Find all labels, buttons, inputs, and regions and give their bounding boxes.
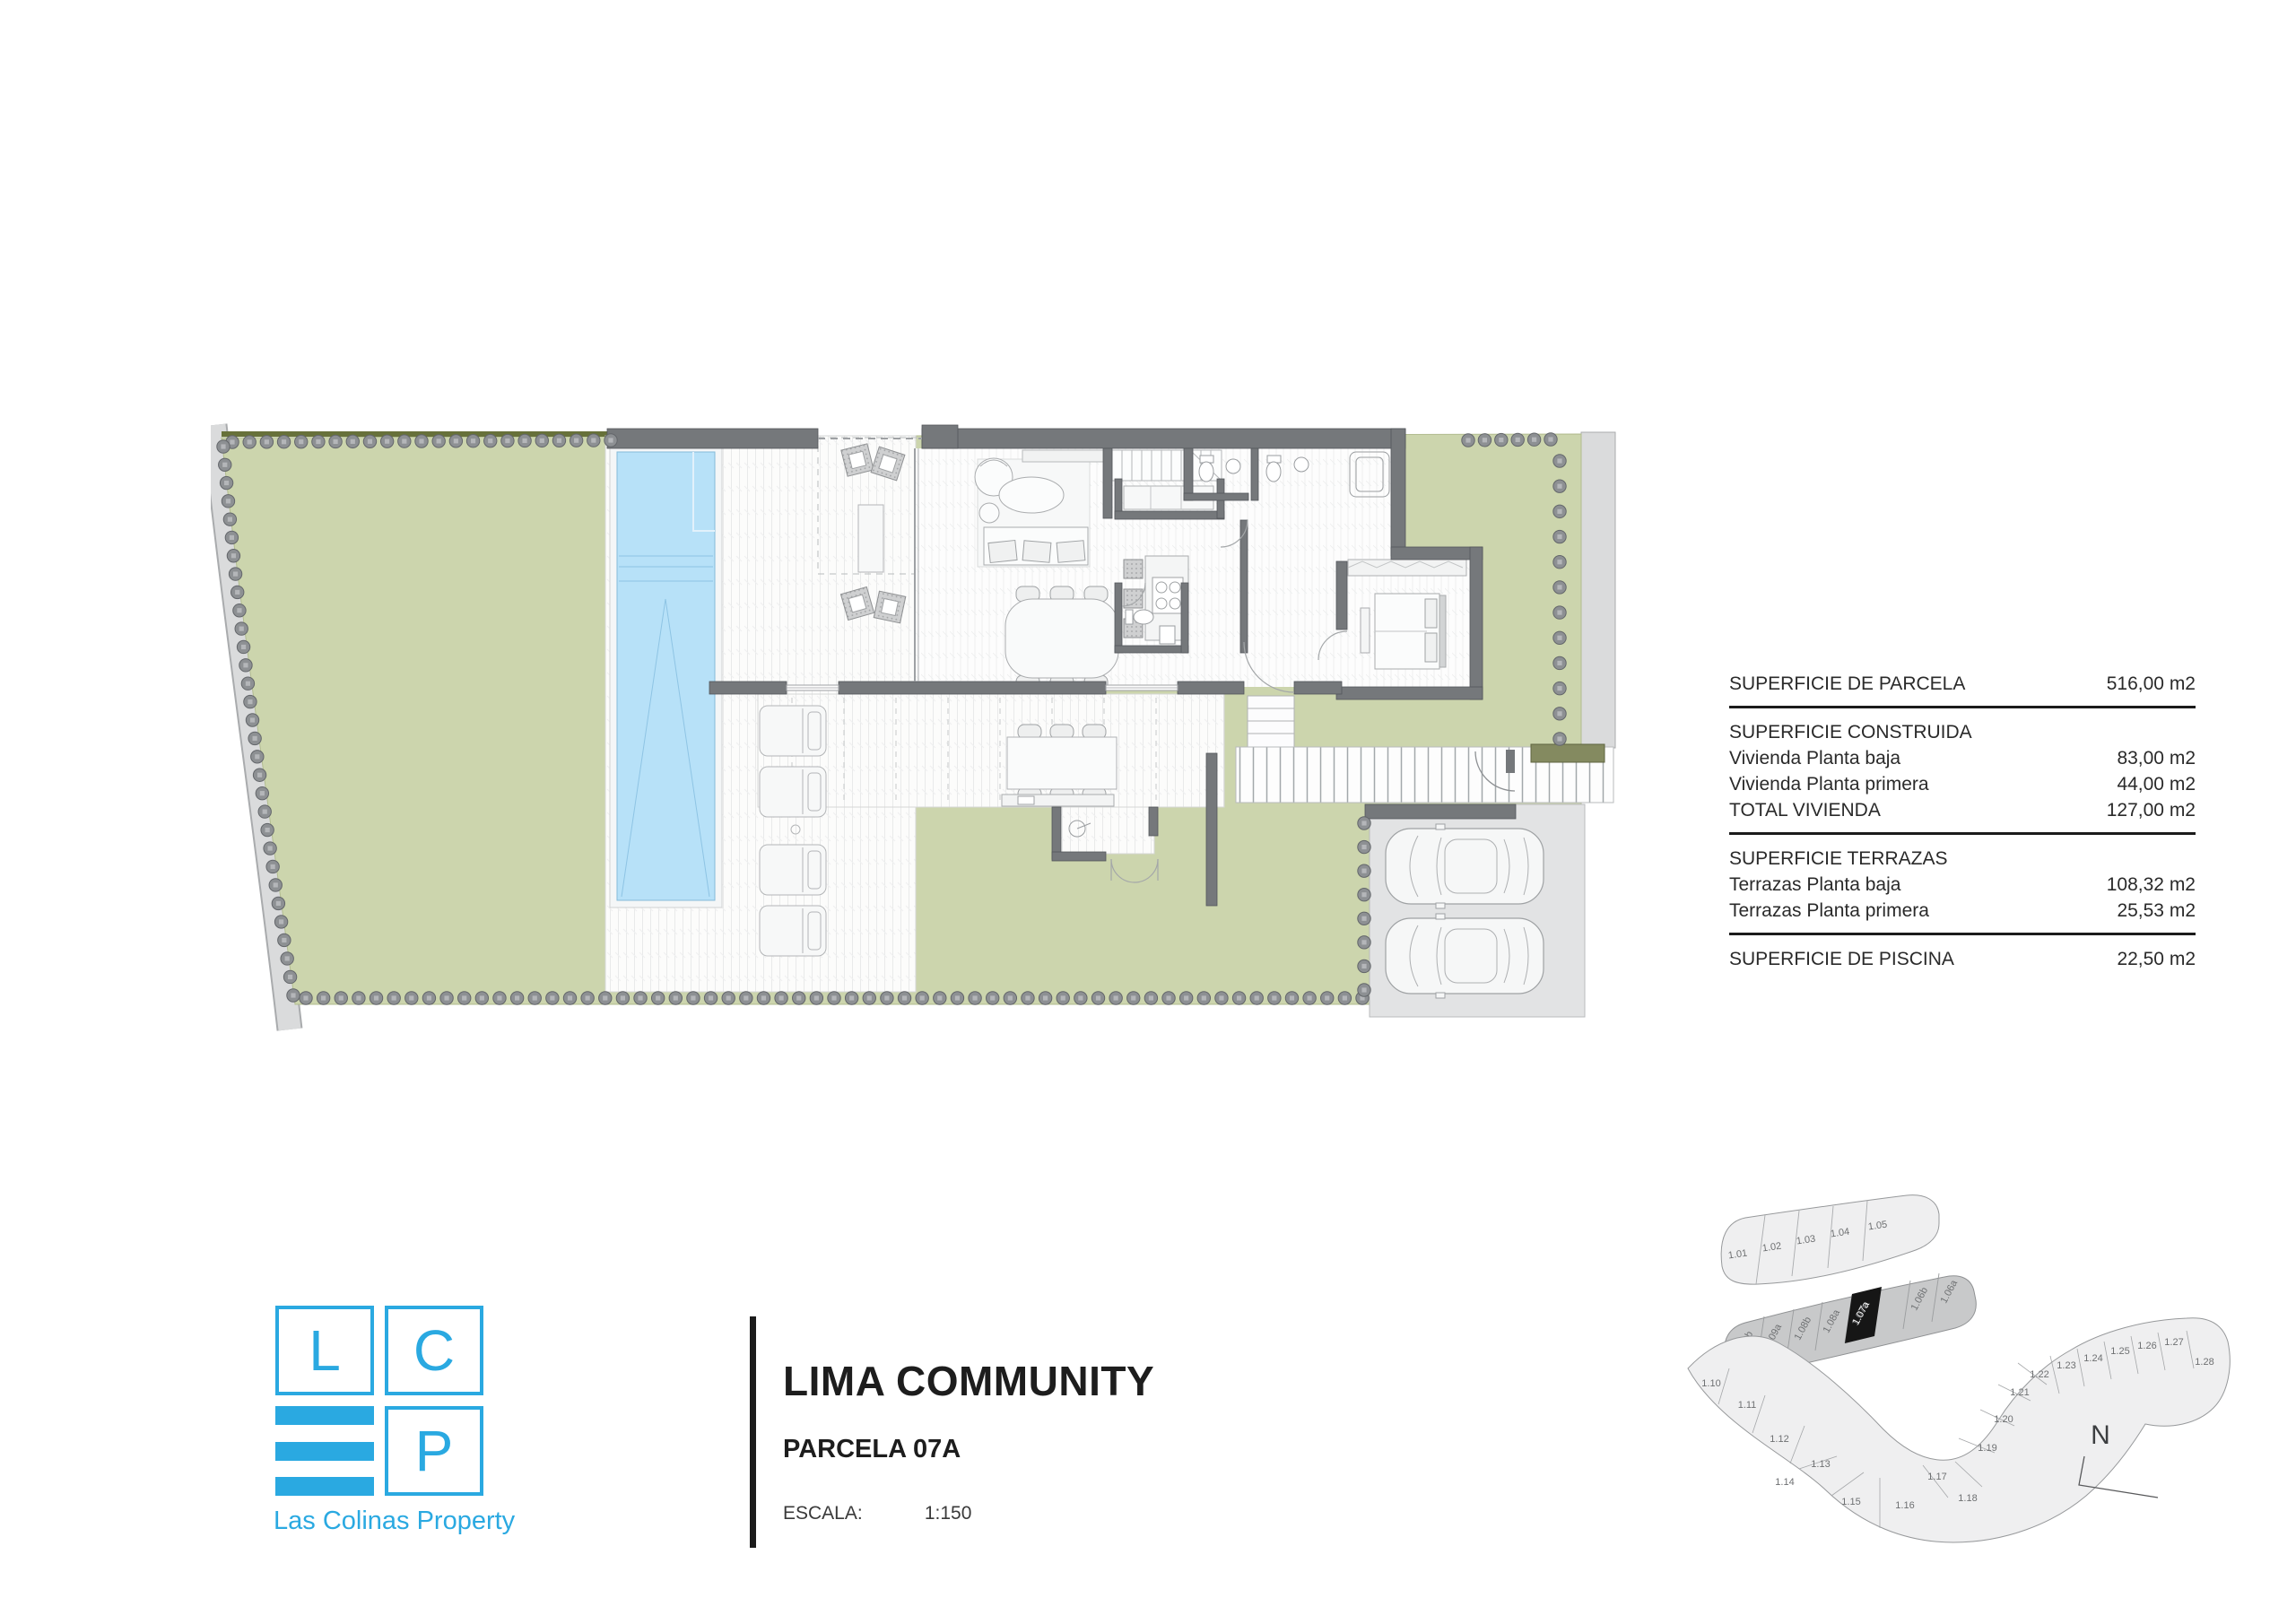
headboard [1439,595,1446,667]
perimeter-path-right [1581,432,1615,748]
swimming-pool [610,445,722,908]
parcel-label: 1.15 [1841,1497,1860,1507]
table-row: SUPERFICIE DE PARCELA516,00 m2 [1729,671,2196,697]
lounge-bench [858,505,883,572]
dining-table [1005,599,1118,678]
parcel-label: 1.26 [2137,1341,2156,1351]
parcel-label: 1.22 [2030,1369,2048,1380]
parcel-label: 1.24 [2083,1353,2102,1364]
dining-area [1005,586,1118,690]
parcel-label: 1.23 [2057,1360,2075,1371]
table-row: TOTAL VIVIENDA127,00 m2 [1729,797,2196,823]
parcel-label: 1.18 [1958,1493,1977,1504]
entry-steps [1248,696,1294,747]
living-room [975,450,1105,567]
parcel-label: 1.19 [1978,1443,1996,1454]
site-mini-map: 1.01 1.02 1.03 1.04 1.05 1.09b 1.09a 1.0… [1679,1182,2235,1568]
divider [1729,933,2196,935]
title-block: LIMA COMMUNITY PARCELA 07A ESCALA: 1:150 [750,1316,1252,1550]
logo-letter-p: P [385,1406,483,1496]
driveway-wall [1365,804,1516,819]
scale-row: ESCALA: 1:150 [783,1503,971,1524]
table-row: SUPERFICIE TERRAZAS [1729,846,2196,872]
parcel-label: 1.17 [1927,1472,1946,1482]
kitchen [1124,556,1188,640]
coffee-table [999,477,1064,513]
sofa [984,527,1088,565]
parcel-label: 1.16 [1895,1500,1914,1511]
parcel-ribbon: 1.10 1.11 1.12 1.13 1.14 1.15 1.16 1.17 … [1688,1318,2230,1542]
divider [1729,832,2196,835]
table-row: SUPERFICIE DE PISCINA22,50 m2 [1729,946,2196,972]
company-logo: L C P Las Colinas Property [272,1302,523,1553]
freestanding-wall [1206,753,1217,906]
parcel-label: 1.27 [2164,1337,2183,1348]
parcel-label: 1.12 [1770,1434,1788,1445]
title-rule-bar [750,1316,756,1548]
bedroom-bench [1361,608,1370,653]
outdoor-sink [1018,796,1034,804]
scale-value: 1:150 [925,1503,972,1524]
table-row: Vivienda Planta primera44,00 m2 [1729,771,2196,797]
logo-letter-l: L [275,1306,374,1395]
parcel-subtitle: PARCELA 07A [783,1435,961,1464]
parcel-label: 1.10 [1701,1378,1720,1389]
parcel-label: 1.13 [1811,1459,1830,1470]
parcel-label: 1.11 [1738,1400,1757,1411]
scale-label: ESCALA: [783,1503,919,1524]
wardrobe [1348,560,1466,576]
tv-cabinet [1022,450,1105,462]
parcel-label: 1.21 [2010,1387,2029,1398]
hedge-line-top [222,431,613,437]
outdoor-dining [1002,725,1117,806]
page: { "title_block": { "title": "LIMA COMMUN… [0,0,2296,1624]
table-row: Terrazas Planta baja108,32 m2 [1729,872,2196,898]
parcel-band-top: 1.01 1.02 1.03 1.04 1.05 [1721,1195,1939,1284]
outdoor-table [1007,737,1117,789]
divider [1729,706,2196,708]
table-row: SUPERFICIE CONSTRUIDA [1729,719,2196,745]
parcel-label: 1.20 [1994,1414,2013,1425]
table-row: Terrazas Planta primera25,53 m2 [1729,898,2196,924]
entry-walkway [1236,744,1613,803]
logo-grid: L C P [275,1306,491,1498]
logo-letter-c: C [385,1306,483,1395]
floor-plan [211,423,1619,1051]
lower-terrace [758,694,1224,807]
table-row: Vivienda Planta baja83,00 m2 [1729,745,2196,771]
surface-table: SUPERFICIE DE PARCELA516,00 m2 SUPERFICI… [1729,671,2196,972]
logo-wordmark: Las Colinas Property [274,1507,515,1536]
parcel-label: 1.28 [2195,1357,2213,1368]
parcel-label: 1.14 [1775,1477,1794,1488]
driveway [1365,804,1585,1017]
page-title: LIMA COMMUNITY [783,1357,1154,1405]
north-label: N [2091,1420,2110,1450]
side-table-round [979,503,999,523]
logo-bars-icon [275,1406,374,1496]
entry-wall [1531,744,1605,762]
parcel-label: 1.25 [2110,1346,2129,1357]
